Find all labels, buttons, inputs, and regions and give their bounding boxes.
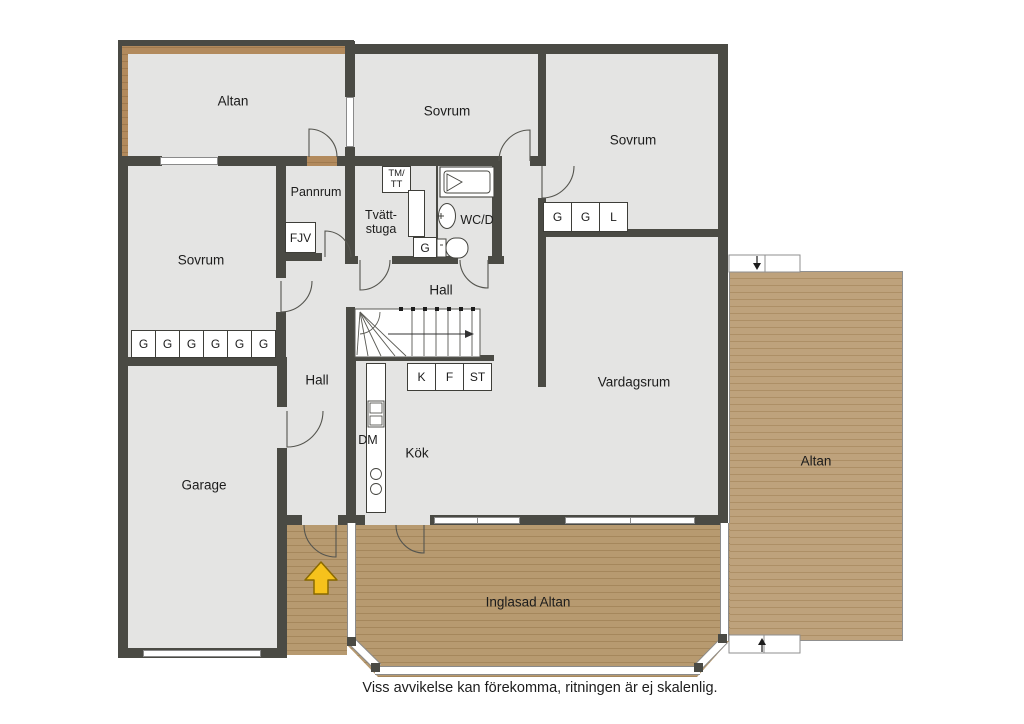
closet: G (227, 330, 252, 358)
door-opening (500, 156, 530, 166)
wall-segment (345, 41, 355, 97)
label-sovrum-right: Sovrum (610, 133, 657, 148)
kitchen-unit: F (435, 363, 464, 391)
door-opening (322, 253, 345, 261)
window (565, 517, 695, 524)
tt-label: TT (391, 179, 403, 190)
door-opening (458, 256, 488, 264)
wall-segment (355, 156, 500, 166)
wall-segment (346, 355, 494, 361)
closet: G (543, 202, 572, 232)
label-sovrum-top: Sovrum (424, 104, 471, 119)
label-pannrum: Pannrum (291, 185, 342, 199)
deck-entrance (287, 525, 347, 655)
altan-steps-top (729, 255, 800, 272)
disclaimer-text: Viss avvikelse kan förekomma, ritningen … (362, 680, 717, 696)
wall-segment (277, 357, 287, 407)
wall-segment (347, 44, 728, 54)
closet: L (599, 202, 628, 232)
window (346, 97, 354, 147)
fjv-unit: FJV (285, 222, 316, 253)
wall-segment (345, 256, 358, 264)
wall-segment (118, 357, 286, 366)
closet: G (131, 330, 156, 358)
label-altan-right: Altan (801, 454, 832, 469)
label-altan-top: Altan (218, 94, 249, 109)
door-opening (302, 515, 338, 525)
wall-segment (538, 237, 546, 387)
door-opening (307, 156, 337, 166)
fjv-label: FJV (290, 232, 311, 244)
g-label: G (420, 242, 429, 254)
wall-segment (277, 515, 302, 525)
window (160, 157, 218, 165)
wall-segment (218, 156, 307, 166)
wall-segment (346, 307, 355, 358)
garage-door-opening (143, 650, 261, 657)
wall-segment (346, 358, 356, 515)
wall-segment (278, 253, 322, 261)
kitchen-unit: ST (463, 363, 492, 391)
floor-garage (128, 366, 277, 648)
label-sovrum-left: Sovrum (178, 253, 225, 268)
washer-dryer-unit: TM/ TT (382, 166, 411, 193)
label-hall-upper: Hall (429, 283, 452, 298)
label-wc: WC/D (460, 213, 493, 227)
label-inglasad-altan: Inglasad Altan (486, 595, 571, 610)
closet: G (155, 330, 180, 358)
laundry-cabinet: G (413, 237, 437, 258)
closet: G (571, 202, 600, 232)
window (434, 517, 520, 524)
wall-segment (718, 44, 728, 525)
label-hall-lower: Hall (305, 373, 328, 388)
tm-label: TM/ (388, 168, 404, 179)
wall-segment (118, 156, 128, 658)
wall-segment (492, 156, 502, 264)
wall-segment (345, 147, 355, 264)
step-arrow-down-icon (753, 263, 761, 270)
laundry-bench (408, 190, 425, 237)
closet: G (179, 330, 204, 358)
wall-segment (118, 40, 354, 46)
wall-segment (338, 515, 365, 525)
label-tvattstuga: Tvätt- stuga (365, 208, 397, 236)
wall-segment (538, 54, 546, 162)
floor-plan: FJV TM/ TT G G G L G G G G G G K F ST (0, 0, 1024, 724)
label-garage: Garage (181, 478, 226, 493)
door-opening (365, 515, 430, 525)
label-dm: DM (358, 433, 377, 447)
wall-segment (277, 448, 287, 658)
kitchen-unit: K (407, 363, 436, 391)
door-opening (276, 278, 286, 312)
door-opening (277, 407, 287, 448)
closet: G (203, 330, 228, 358)
closet: G (251, 330, 276, 358)
wall-segment (118, 40, 122, 157)
door-opening (358, 256, 392, 264)
label-vardagsrum: Vardagsrum (598, 375, 671, 390)
wall-segment (118, 156, 162, 166)
label-kok: Kök (405, 446, 428, 461)
